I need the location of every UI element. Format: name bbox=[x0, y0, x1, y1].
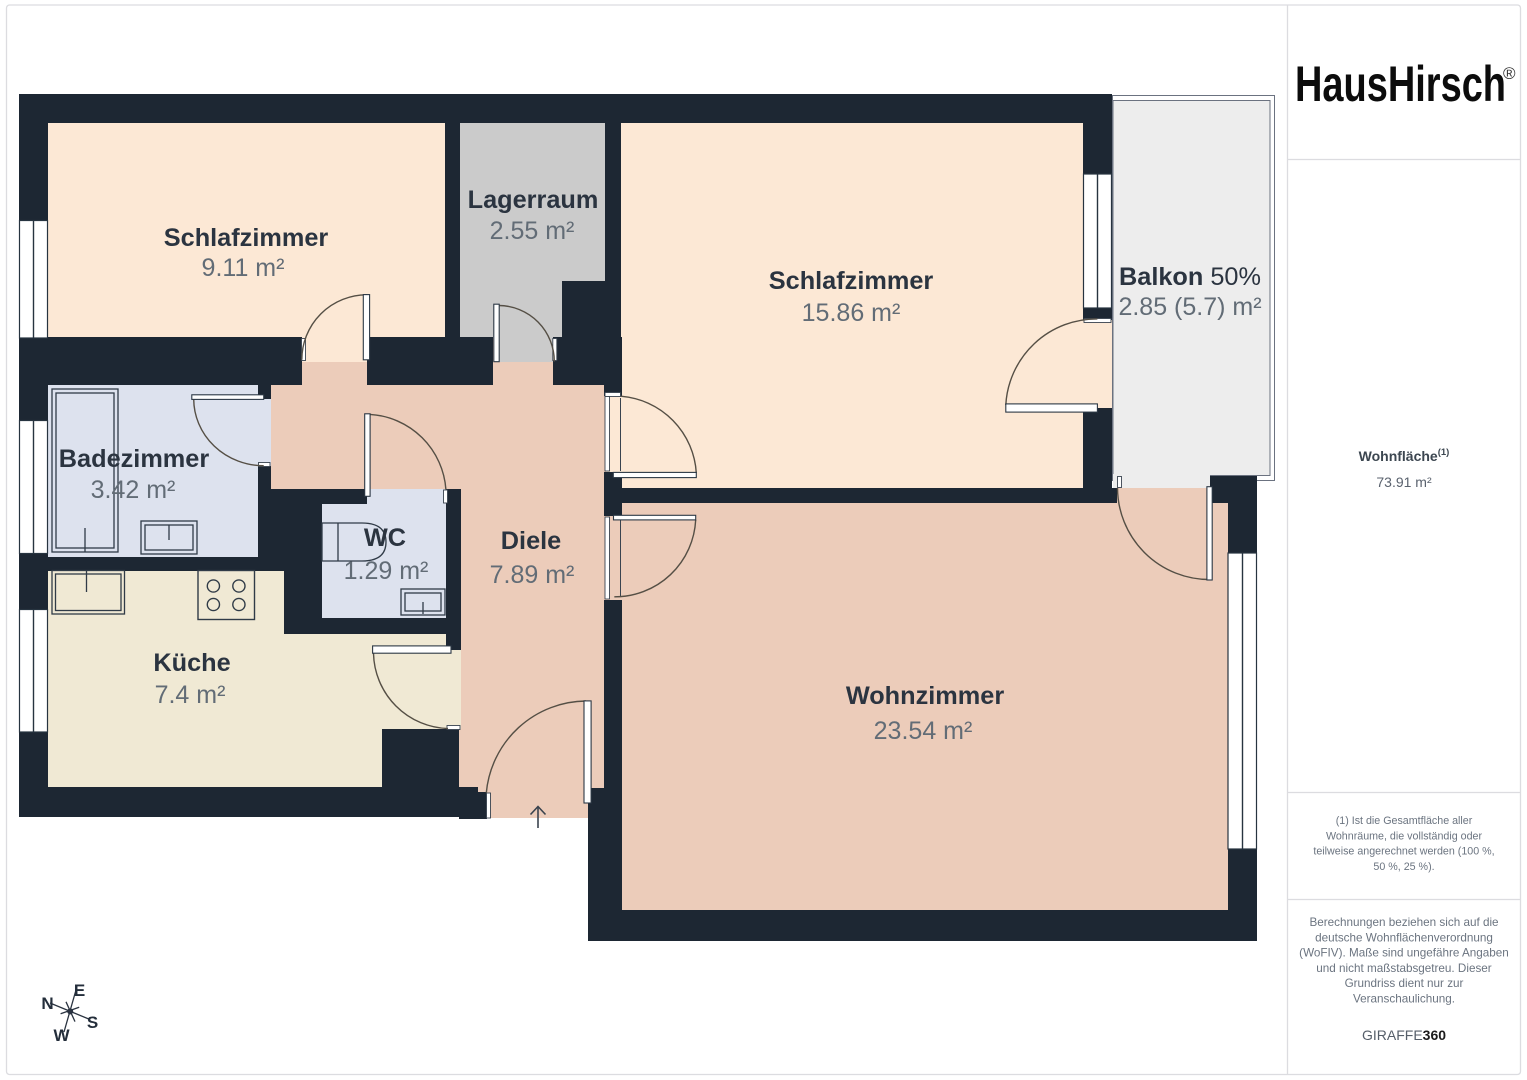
svg-text:Schlafzimmer: Schlafzimmer bbox=[164, 224, 329, 252]
svg-text:W: W bbox=[53, 1026, 70, 1045]
svg-text:Wohnräume, die vollständig ode: Wohnräume, die vollständig oder bbox=[1326, 830, 1482, 842]
svg-text:Veranschaulichung.: Veranschaulichung. bbox=[1353, 993, 1455, 1006]
svg-text:9.11 m²: 9.11 m² bbox=[202, 254, 285, 282]
svg-text:7.89 m²: 7.89 m² bbox=[490, 561, 575, 589]
svg-text:®: ® bbox=[1503, 64, 1516, 83]
svg-text:7.4 m²: 7.4 m² bbox=[155, 681, 226, 709]
svg-text:Schlafzimmer: Schlafzimmer bbox=[769, 267, 934, 295]
svg-text:Berechnungen beziehen sich auf: Berechnungen beziehen sich auf die bbox=[1309, 916, 1498, 929]
svg-text:Lagerraum: Lagerraum bbox=[468, 186, 599, 214]
svg-text:73.91 m²: 73.91 m² bbox=[1376, 474, 1432, 490]
svg-text:Grundriss dient nur zur: Grundriss dient nur zur bbox=[1345, 977, 1464, 990]
svg-text:3.42 m²: 3.42 m² bbox=[91, 476, 176, 504]
svg-text:HausHirsch: HausHirsch bbox=[1295, 56, 1506, 112]
svg-text:deutsche Wohnflächenverordnung: deutsche Wohnflächenverordnung bbox=[1315, 931, 1493, 944]
svg-text:50 %, 25 %).: 50 %, 25 %). bbox=[1373, 861, 1434, 873]
svg-text:Diele: Diele bbox=[501, 527, 561, 555]
svg-text:N: N bbox=[41, 994, 53, 1013]
svg-text:2.85 (5.7) m²: 2.85 (5.7) m² bbox=[1118, 293, 1261, 321]
svg-text:Wohnfläche(1): Wohnfläche(1) bbox=[1359, 447, 1450, 464]
svg-text:(1) Ist die Gesamtfläche aller: (1) Ist die Gesamtfläche aller bbox=[1336, 815, 1473, 827]
svg-text:GIRAFFE360: GIRAFFE360 bbox=[1362, 1027, 1446, 1043]
svg-text:Wohnzimmer: Wohnzimmer bbox=[846, 682, 1005, 710]
svg-text:und nicht maßstabsgetreu. Dies: und nicht maßstabsgetreu. Dieser bbox=[1316, 962, 1492, 975]
svg-text:15.86 m²: 15.86 m² bbox=[802, 299, 901, 327]
svg-text:S: S bbox=[87, 1013, 98, 1032]
svg-text:Badezimmer: Badezimmer bbox=[59, 445, 210, 473]
svg-text:Balkon 50%: Balkon 50% bbox=[1119, 263, 1261, 291]
svg-text:teilweise angerechnet werden (: teilweise angerechnet werden (100 %, bbox=[1313, 846, 1494, 858]
svg-text:E: E bbox=[74, 981, 85, 1000]
svg-text:1.29 m²: 1.29 m² bbox=[344, 557, 429, 585]
svg-text:(WoFIV). Maße sind ungefähre A: (WoFIV). Maße sind ungefähre Angaben bbox=[1299, 947, 1509, 960]
svg-text:WC: WC bbox=[364, 524, 406, 552]
svg-text:Küche: Küche bbox=[153, 649, 230, 677]
svg-text:23.54 m²: 23.54 m² bbox=[874, 717, 973, 745]
svg-text:2.55 m²: 2.55 m² bbox=[490, 217, 575, 245]
